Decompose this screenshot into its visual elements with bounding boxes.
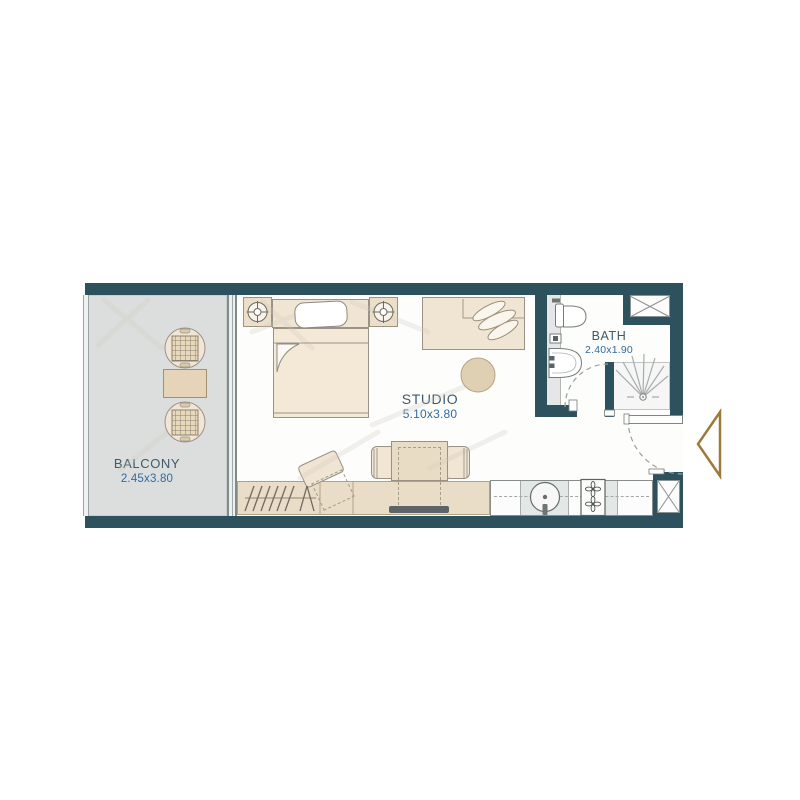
balcony-glass-partition [227,295,237,516]
wall-bottom [85,516,683,528]
wardrobe-cabinet [422,297,525,350]
nightstand-left [243,297,272,327]
bath-name: BATH [578,329,640,343]
balcony-table [163,369,207,398]
desk-chair-outline [398,447,441,510]
floor-plan: BALCONY 2.45x3.80 STUDIO 5.10x3.80 BATH … [0,0,800,800]
kitchen-counter [490,480,653,516]
entry-marker-icon [698,412,720,476]
media-wardrobe-unit [237,481,490,515]
service-shaft-bottom [657,480,680,513]
wall-bath-left [535,295,547,417]
wall-shaft-bottom [623,317,670,325]
bath-dimensions: 2.40x1.90 [578,344,640,356]
shower-floor [613,362,670,410]
tv [389,506,449,513]
bath-label: BATH 2.40x1.90 [578,329,640,356]
nightstand-right [369,297,398,327]
kitchen-gray-section [604,481,618,515]
bathroom-vanity-strip [547,295,561,405]
kitchen-sink-section [520,481,569,515]
wall-bath-bottom [535,405,577,417]
balcony-railing [83,295,89,516]
studio-label: STUDIO 5.10x3.80 [382,391,478,422]
balcony-label: BALCONY 2.45x3.80 [92,457,202,486]
balcony-dimensions: 2.45x3.80 [92,473,202,486]
glass-partition-line [232,295,233,516]
studio-name: STUDIO [382,391,478,407]
bath-door-leaf [605,362,614,417]
entry-door-leaf [628,415,683,424]
double-bed [273,328,369,418]
service-shaft-top [630,295,670,317]
kitchen-counter-centerline [494,496,649,497]
balcony-name: BALCONY [92,457,202,472]
bed-headboard [272,299,369,328]
wall-right-upper [670,295,683,416]
wall-top [85,283,683,295]
studio-dimensions: 5.10x3.80 [382,408,478,422]
